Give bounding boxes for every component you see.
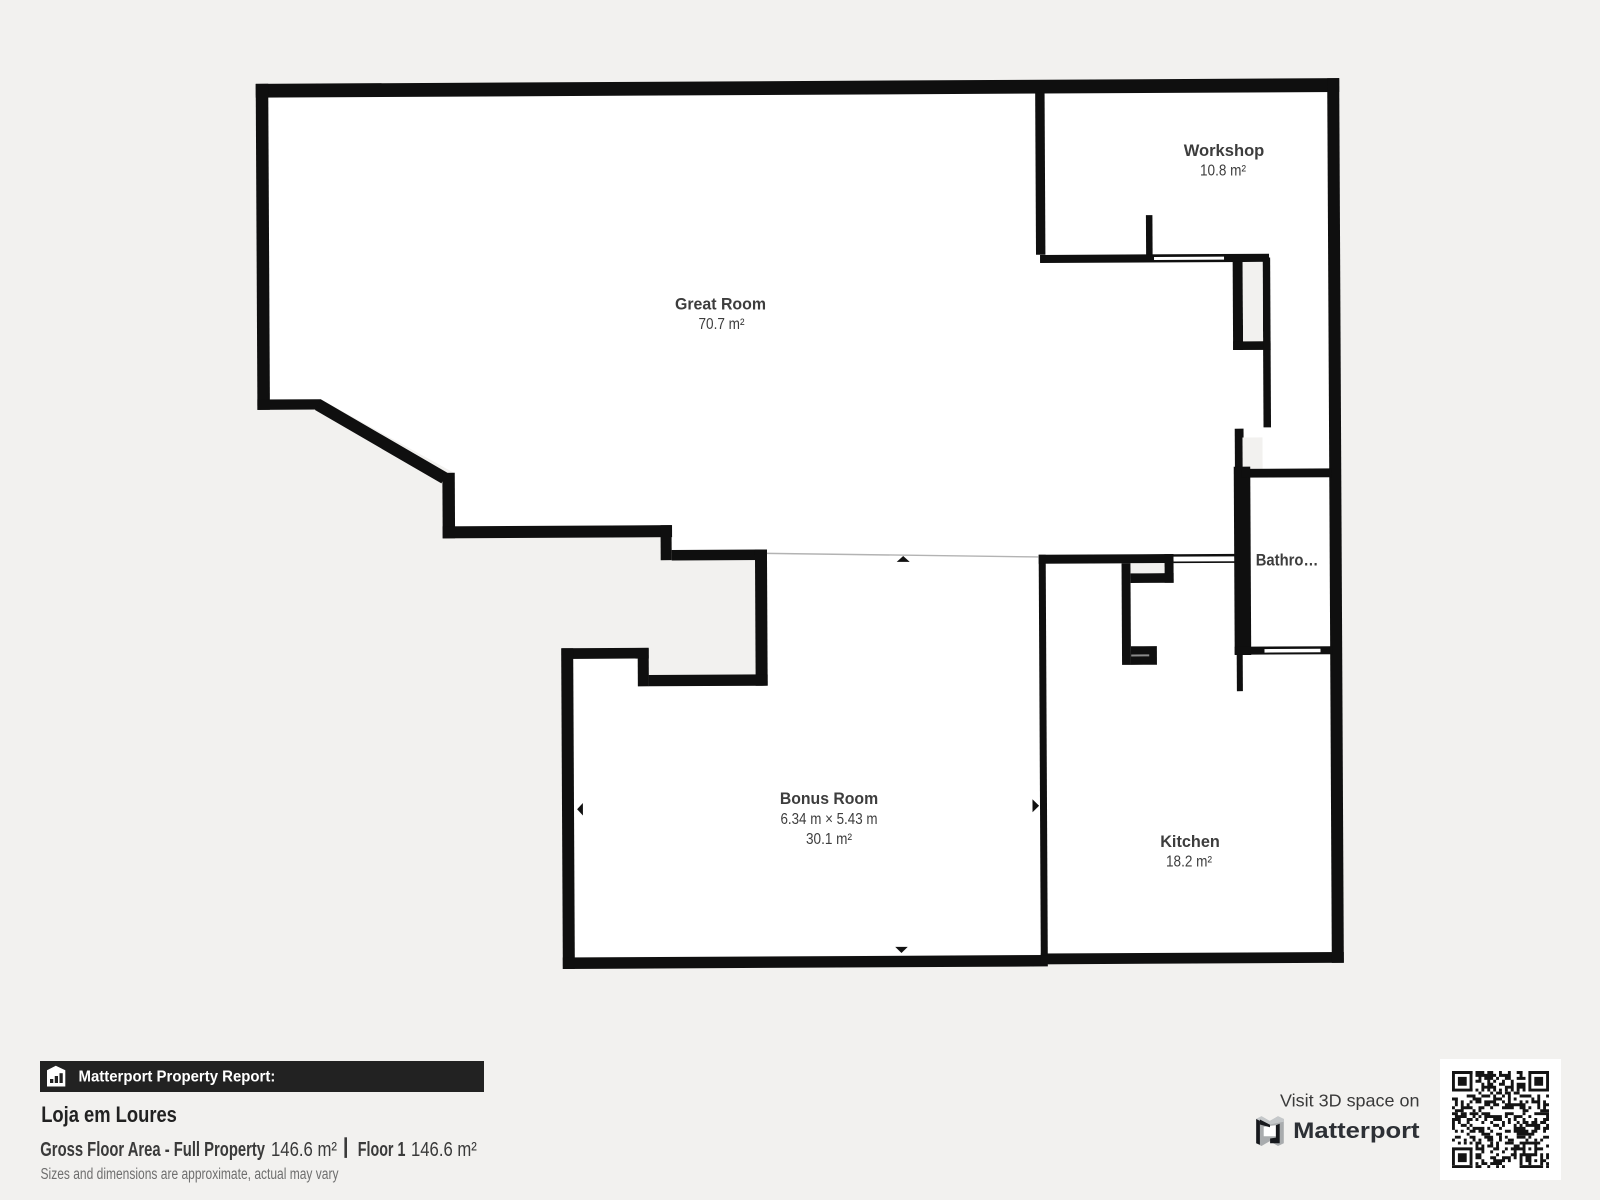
svg-text:Gross Floor Area - Full Proper: Gross Floor Area - Full Property bbox=[40, 1139, 265, 1161]
svg-text:Bathro…: Bathro… bbox=[1256, 551, 1319, 569]
svg-text:Visit 3D space on: Visit 3D space on bbox=[1280, 1091, 1420, 1111]
svg-text:146.6 m²: 146.6 m² bbox=[411, 1139, 477, 1161]
svg-text:Loja em Loures: Loja em Loures bbox=[41, 1102, 177, 1127]
svg-text:Bonus Room: Bonus Room bbox=[780, 790, 878, 808]
svg-text:10.8 m²: 10.8 m² bbox=[1200, 163, 1246, 180]
svg-text:Matterport Property Report:: Matterport Property Report: bbox=[79, 1069, 276, 1086]
svg-text:Workshop: Workshop bbox=[1184, 142, 1265, 160]
svg-text:18.2 m²: 18.2 m² bbox=[1166, 854, 1212, 871]
svg-text:146.6 m²: 146.6 m² bbox=[271, 1139, 337, 1161]
svg-text:Kitchen: Kitchen bbox=[1160, 833, 1220, 851]
svg-text:6.34 m × 5.43 m: 6.34 m × 5.43 m bbox=[780, 811, 877, 828]
svg-text:30.1 m²: 30.1 m² bbox=[806, 831, 852, 848]
svg-text:Great Room: Great Room bbox=[675, 295, 766, 313]
svg-text:70.7 m²: 70.7 m² bbox=[699, 316, 745, 333]
svg-text:Sizes and dimensions are appro: Sizes and dimensions are approximate, ac… bbox=[41, 1166, 339, 1183]
svg-text:Matterport: Matterport bbox=[1293, 1118, 1420, 1143]
svg-text:Floor 1: Floor 1 bbox=[358, 1139, 406, 1161]
